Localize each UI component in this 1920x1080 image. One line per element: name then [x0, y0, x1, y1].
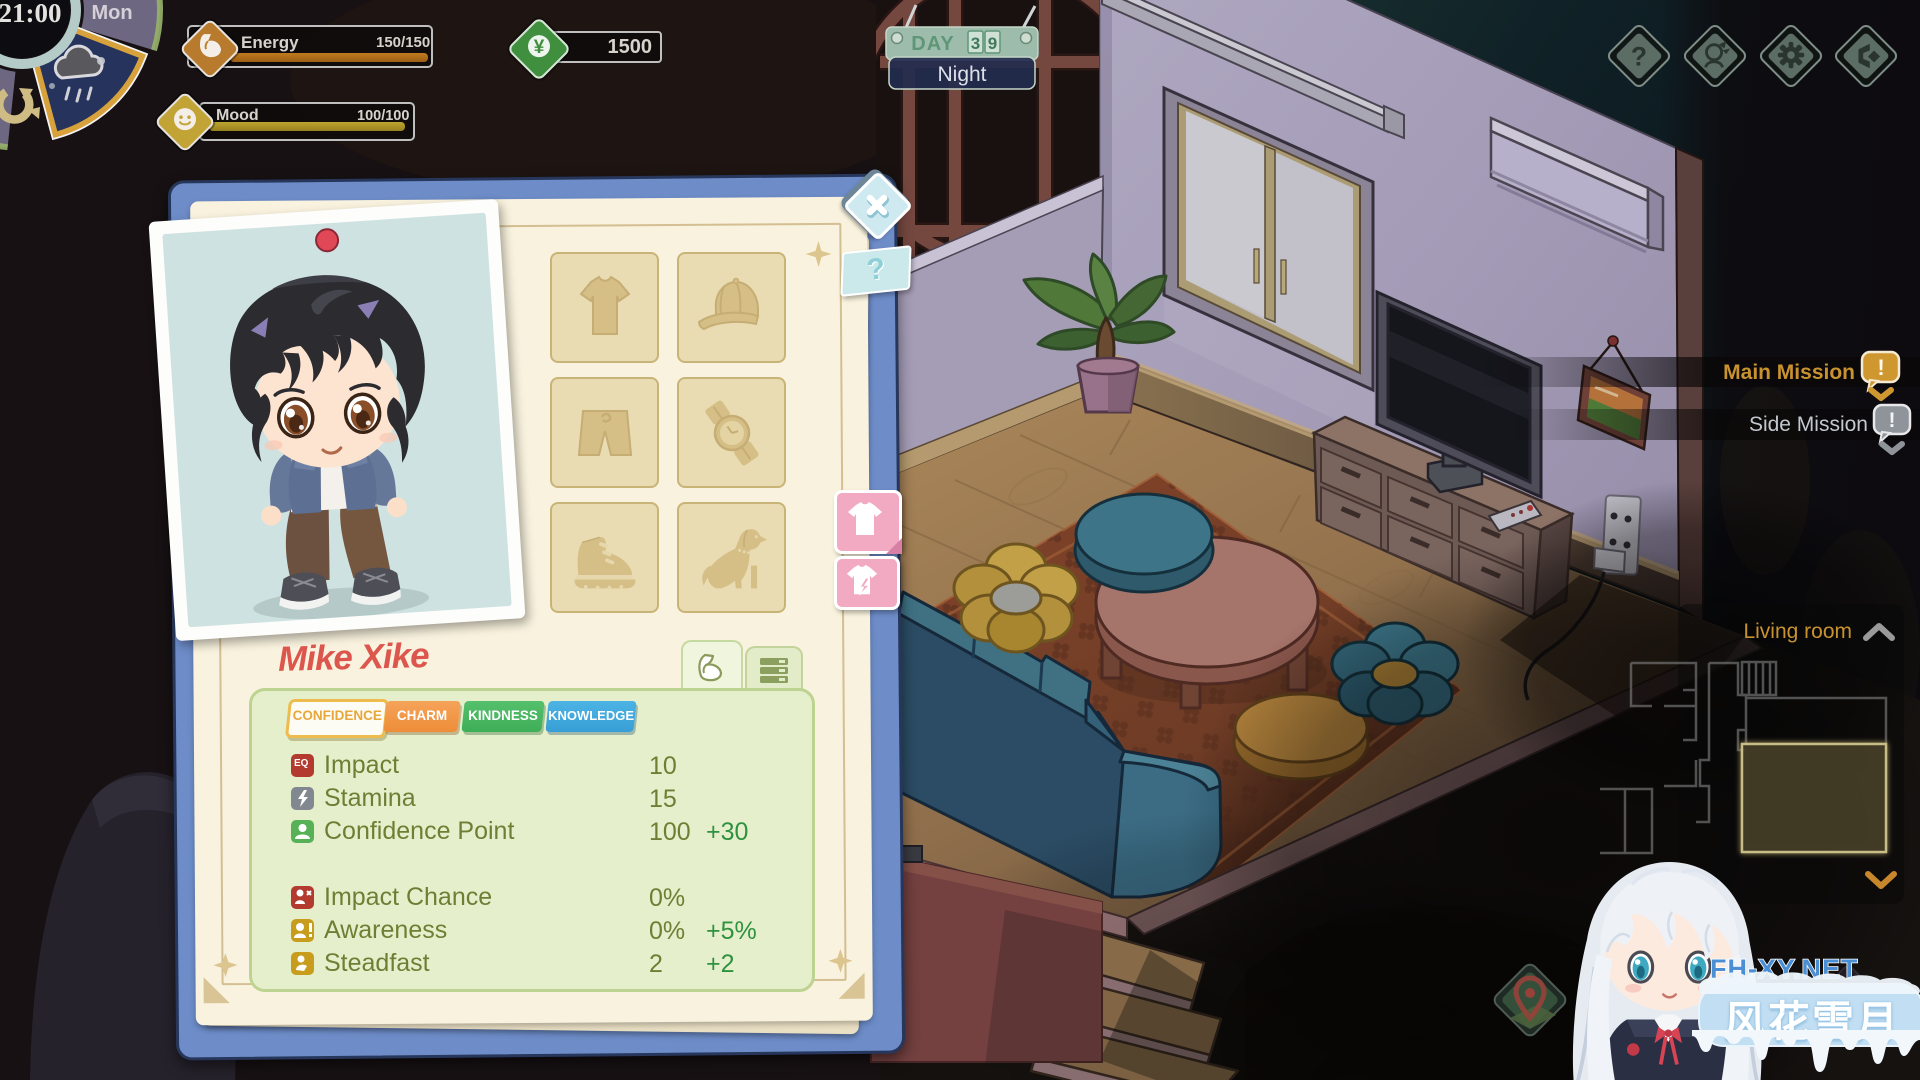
svg-text:!: !: [1889, 409, 1896, 432]
svg-text:Night: Night: [937, 63, 986, 86]
svg-text:¥: ¥: [534, 37, 545, 58]
svg-text:3: 3: [971, 34, 980, 53]
svg-text:9: 9: [988, 34, 997, 53]
svg-text:21:00: 21:00: [0, 0, 62, 28]
svg-text:Mon: Mon: [91, 2, 132, 24]
svg-text:?: ?: [1631, 41, 1647, 71]
svg-text:!: !: [1877, 355, 1884, 380]
svg-text:DAY: DAY: [911, 33, 954, 55]
